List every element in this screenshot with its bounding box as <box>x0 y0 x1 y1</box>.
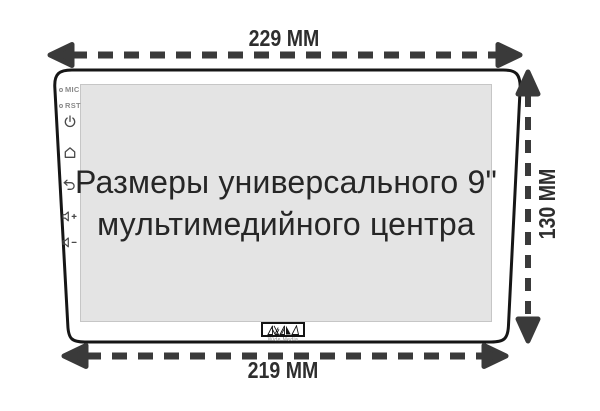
power-icon <box>63 115 77 129</box>
rst-row: RST <box>59 101 81 110</box>
volume-up-icon <box>62 211 78 222</box>
wide-media-logo-mark <box>261 322 305 337</box>
device-screen: Размеры универсального 9" мультимедийног… <box>80 84 492 322</box>
wide-media-logo: Wide Media <box>261 322 305 343</box>
mic-row: MIC <box>59 85 80 94</box>
rst-pinhole-icon <box>59 104 63 108</box>
wide-media-logo-text: Wide Media <box>261 337 305 343</box>
home-icon <box>63 146 77 159</box>
mic-pinhole-icon <box>59 88 63 92</box>
dimension-bottom-label: 219 MM <box>198 358 368 382</box>
volume-down-icon <box>62 237 78 248</box>
dimensions-diagram: 229 MM 219 MM 130 MM Размеры универсальн… <box>0 0 600 411</box>
screen-title-line2: мультимедийного центра <box>97 203 475 245</box>
screen-title-line1: Размеры универсального 9" <box>75 161 497 203</box>
dimension-top-label: 229 MM <box>199 26 369 50</box>
dimension-right-label: 130 MM <box>535 153 559 255</box>
back-icon <box>63 179 76 191</box>
rst-label: RST <box>65 101 81 110</box>
mic-label: MIC <box>65 85 80 94</box>
